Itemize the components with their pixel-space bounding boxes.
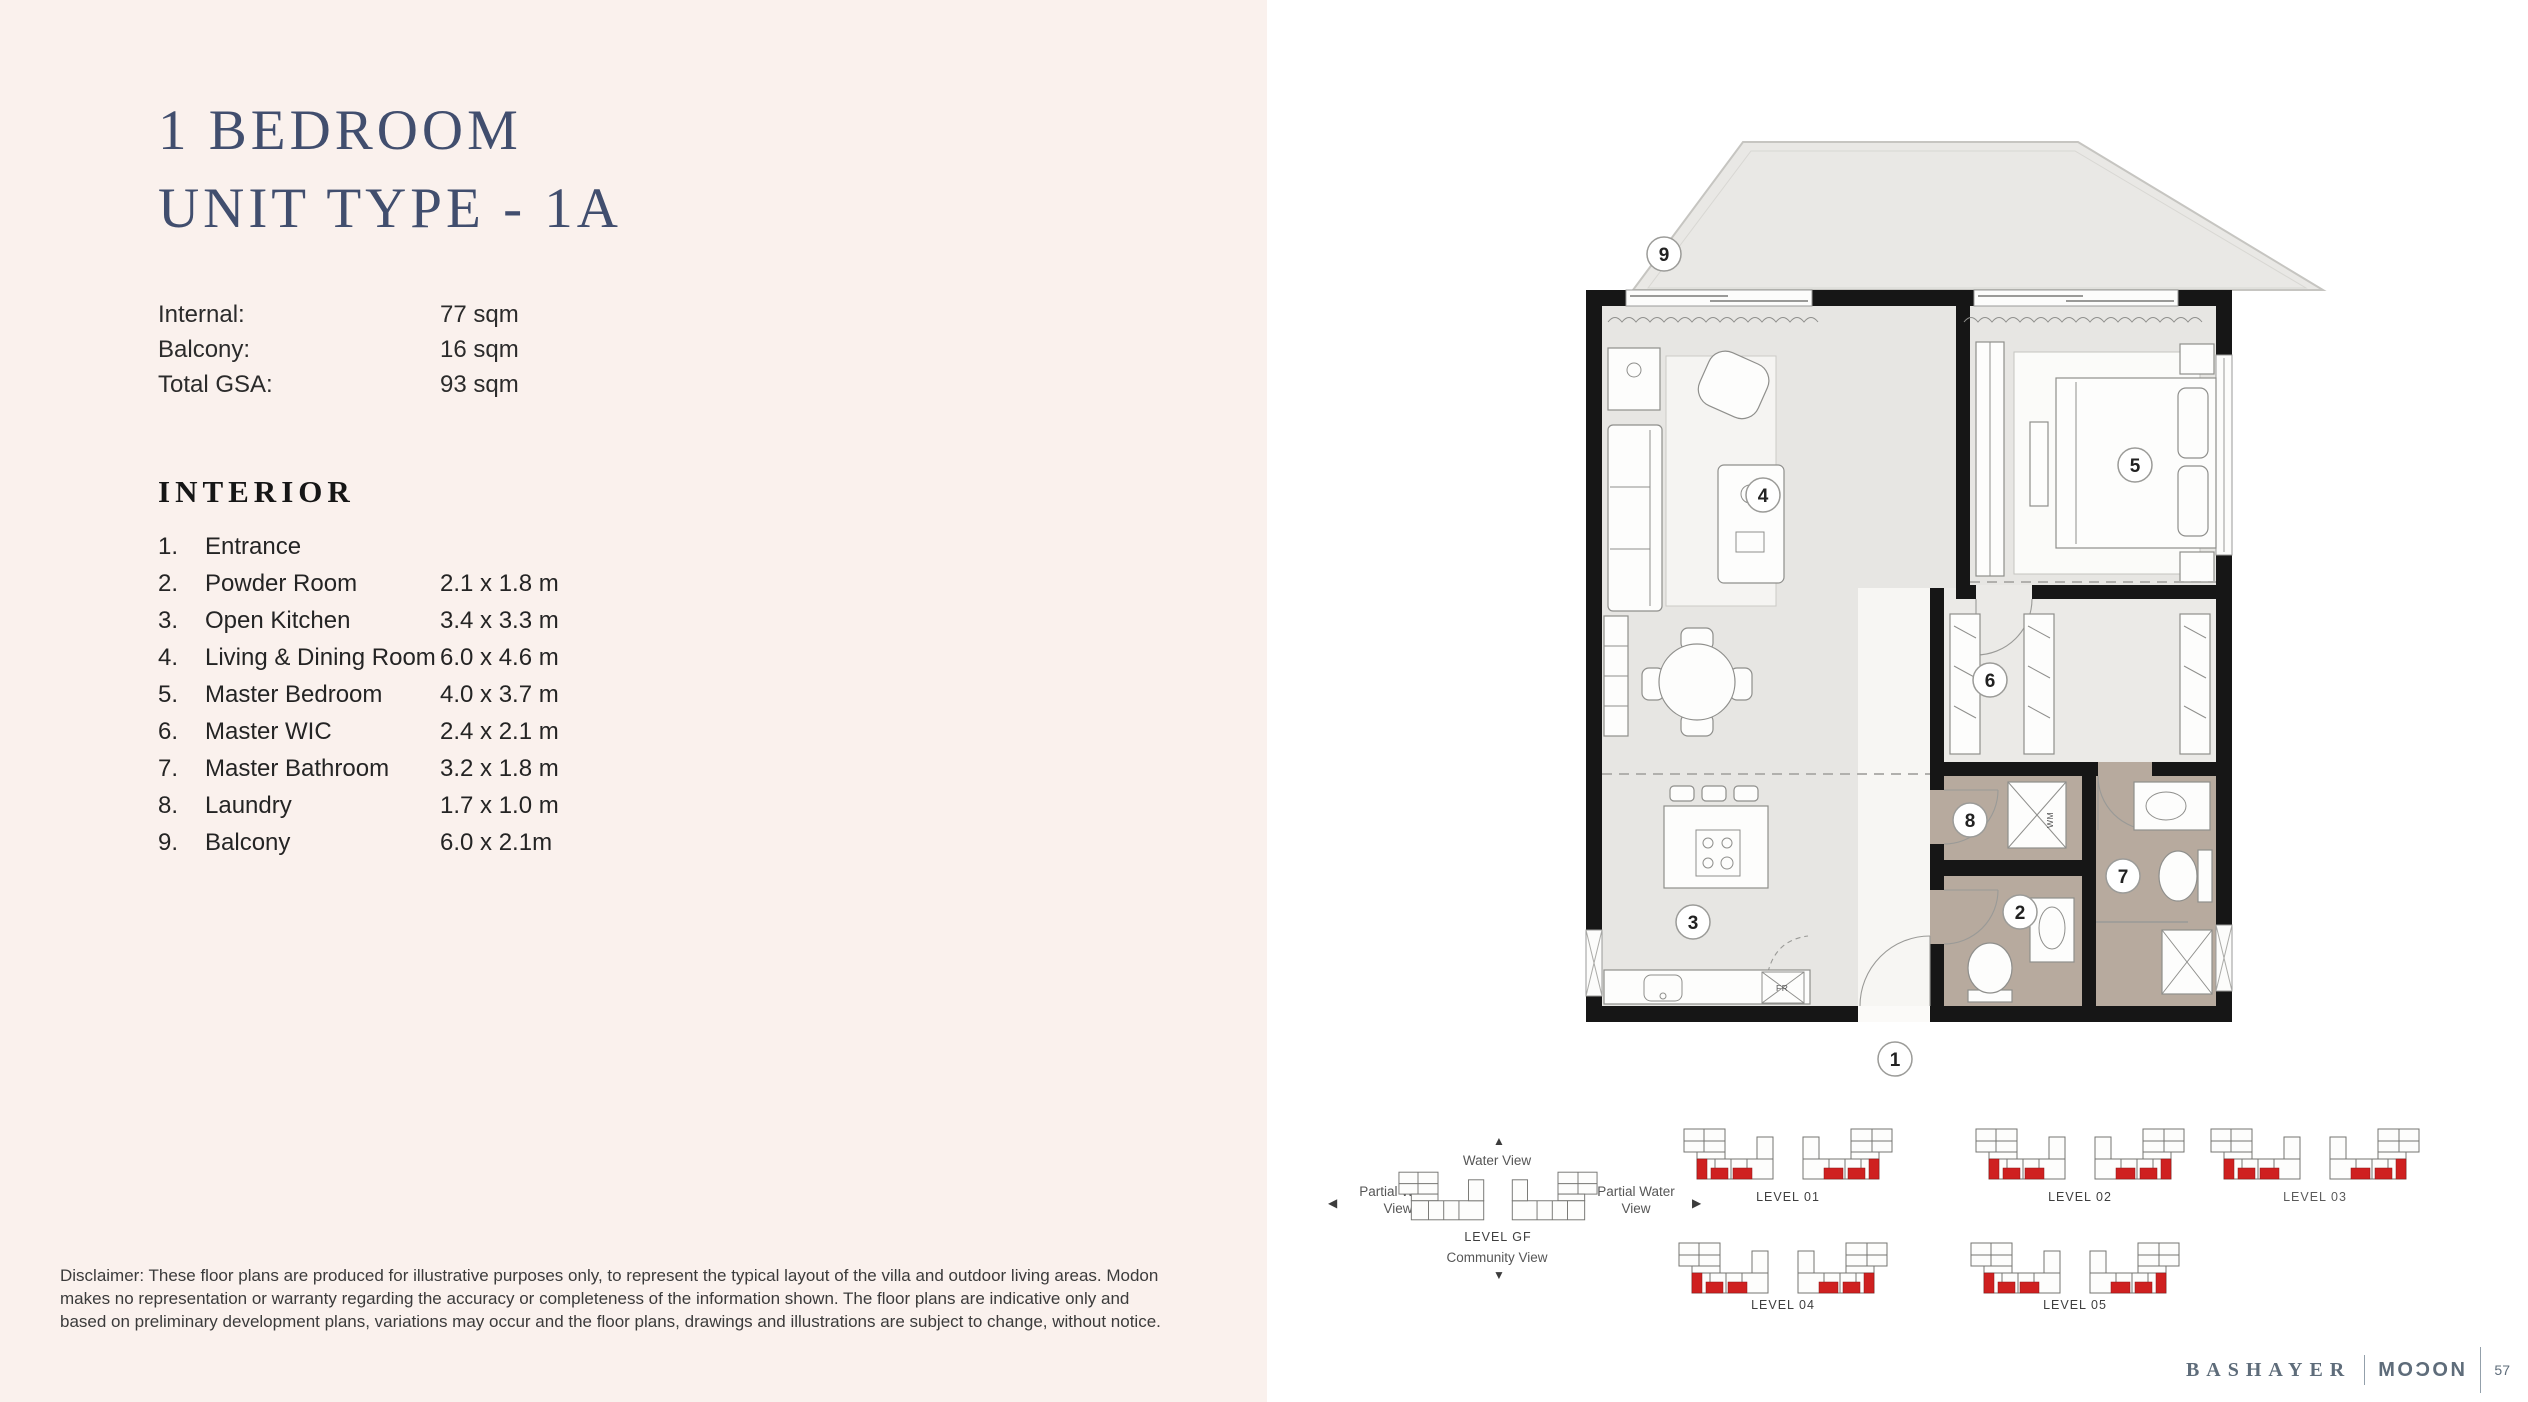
interior-heading: INTERIOR [158,474,355,510]
item-name: Living & Dining Room [205,644,440,672]
stat-internal: Internal: 77 sqm [158,297,519,332]
level-01-caption: LEVEL 01 [1683,1190,1893,1204]
title-line-1: 1 BEDROOM [158,92,622,170]
bath-door-gap [2098,762,2152,776]
level-03-caption: LEVEL 03 [2210,1190,2420,1204]
interior-list: 1.Entrance 2.Powder Room2.1 x 1.8 m 3.Op… [158,528,559,861]
laundry-door-gap [1930,790,1944,844]
item-name: Master Bedroom [205,681,440,709]
item-number: 5. [158,681,205,709]
floor-plan-svg: FR [1578,130,2338,1080]
item-name: Laundry [205,792,440,820]
stat-value: 93 sqm [440,371,519,399]
svg-text:3: 3 [1688,913,1699,934]
stat-total-gsa: Total GSA: 93 sqm [158,367,519,402]
water-view-label: Water View [1437,1153,1557,1170]
washing-machine-label: WM [2045,812,2055,828]
title-line-2: UNIT TYPE - 1A [158,170,622,248]
list-item: 4.Living & Dining Room6.0 x 4.6 m [158,639,559,676]
item-name: Powder Room [205,570,440,598]
level-04-diagram [1678,1240,1888,1296]
level-gf-caption: LEVEL GF [1438,1230,1558,1244]
page-number: 57 [2494,1362,2510,1378]
stat-value: 77 sqm [440,301,519,329]
list-item: 3.Open Kitchen3.4 x 3.3 m [158,602,559,639]
svg-text:4: 4 [1758,486,1769,507]
item-name: Balcony [205,829,440,857]
item-name: Open Kitchen [205,607,440,635]
brochure-page: 1 BEDROOM UNIT TYPE - 1A Internal: 77 sq… [0,0,2528,1402]
svg-text:1: 1 [1890,1050,1901,1071]
disclaimer-text: Disclaimer: These floor plans are produc… [60,1265,1178,1333]
level-03-diagram [2210,1126,2420,1182]
room-number-6: 6 [1973,663,2007,697]
stat-label: Internal: [158,301,440,329]
item-name: Entrance [205,533,440,561]
level-05-caption: LEVEL 05 [1970,1298,2180,1312]
item-dims: 2.4 x 2.1 m [440,718,559,746]
partial-water-view-left-arrow-icon: ◀ [1328,1196,1337,1210]
room-number-9: 9 [1647,237,1681,271]
community-view-arrow-icon: ▼ [1493,1268,1505,1282]
item-number: 2. [158,570,205,598]
item-dims: 4.0 x 3.7 m [440,681,559,709]
level-04-caption: LEVEL 04 [1678,1298,1888,1312]
item-number: 9. [158,829,205,857]
room-number-7: 7 [2106,859,2140,893]
svg-text:9: 9 [1659,245,1670,266]
modon-logo: MOƆON [2378,1359,2467,1382]
svg-text:5: 5 [2130,456,2141,477]
item-number: 4. [158,644,205,672]
list-item: 2.Powder Room2.1 x 1.8 m [158,565,559,602]
stat-value: 16 sqm [440,336,519,364]
item-number: 8. [158,792,205,820]
list-item: 6.Master WIC2.4 x 2.1 m [158,713,559,750]
page-title: 1 BEDROOM UNIT TYPE - 1A [158,92,622,248]
laundry-fixtures: WM [2008,782,2066,848]
item-dims: 1.7 x 1.0 m [440,792,559,820]
powder-door-gap [1930,890,1944,944]
svg-text:8: 8 [1965,811,1976,832]
list-item: 9.Balcony6.0 x 2.1m [158,824,559,861]
svg-text:2: 2 [2015,903,2026,924]
item-number: 1. [158,533,205,561]
fridge-label: FR [1776,983,1788,993]
room-number-8: 8 [1953,803,1987,837]
item-name: Master WIC [205,718,440,746]
wic-door-gap [1976,585,2032,599]
item-number: 7. [158,755,205,783]
water-view-arrow-icon: ▲ [1493,1134,1505,1148]
level-02-caption: LEVEL 02 [1975,1190,2185,1204]
entry-corridor [1858,588,1930,1006]
level-02-diagram [1975,1126,2185,1182]
bashayer-logo: BASHAYER [2186,1359,2351,1382]
level-05-diagram [1970,1240,2180,1296]
key-plan-buildings [1398,1170,1598,1222]
stat-balcony: Balcony: 16 sqm [158,332,519,367]
item-dims: 3.2 x 1.8 m [440,755,559,783]
floor-plan: FR [1578,130,2338,1080]
room-number-1: 1 [1878,1042,1912,1076]
item-dims: 2.1 x 1.8 m [440,570,559,598]
area-stats: Internal: 77 sqm Balcony: 16 sqm Total G… [158,297,519,402]
community-view-label: Community View [1437,1250,1557,1267]
item-dims: 6.0 x 2.1m [440,829,552,857]
item-number: 3. [158,607,205,635]
item-dims: 3.4 x 3.3 m [440,607,559,635]
room-number-2: 2 [2003,895,2037,929]
left-info-panel: 1 BEDROOM UNIT TYPE - 1A Internal: 77 sq… [0,0,1267,1402]
item-dims: 6.0 x 4.6 m [440,644,559,672]
list-item: 8.Laundry1.7 x 1.0 m [158,787,559,824]
balcony-area [1633,142,2323,290]
footer-divider [2364,1355,2365,1385]
room-number-5: 5 [2118,448,2152,482]
item-number: 6. [158,718,205,746]
room-number-4: 4 [1746,478,1780,512]
entrance-gap [1858,1006,1930,1022]
item-name: Master Bathroom [205,755,440,783]
svg-text:7: 7 [2118,867,2129,888]
list-item: 1.Entrance [158,528,559,565]
footer-brand-bar: BASHAYER MOƆON 57 [2150,1344,2510,1396]
footer-divider [2480,1347,2481,1393]
svg-text:6: 6 [1985,671,1996,692]
list-item: 7.Master Bathroom3.2 x 1.8 m [158,750,559,787]
stat-label: Total GSA: [158,371,440,399]
level-01-diagram [1683,1126,1893,1182]
room-number-3: 3 [1676,905,1710,939]
partial-water-view-right-label: Partial Water View [1584,1184,1688,1218]
stat-label: Balcony: [158,336,440,364]
list-item: 5.Master Bedroom4.0 x 3.7 m [158,676,559,713]
